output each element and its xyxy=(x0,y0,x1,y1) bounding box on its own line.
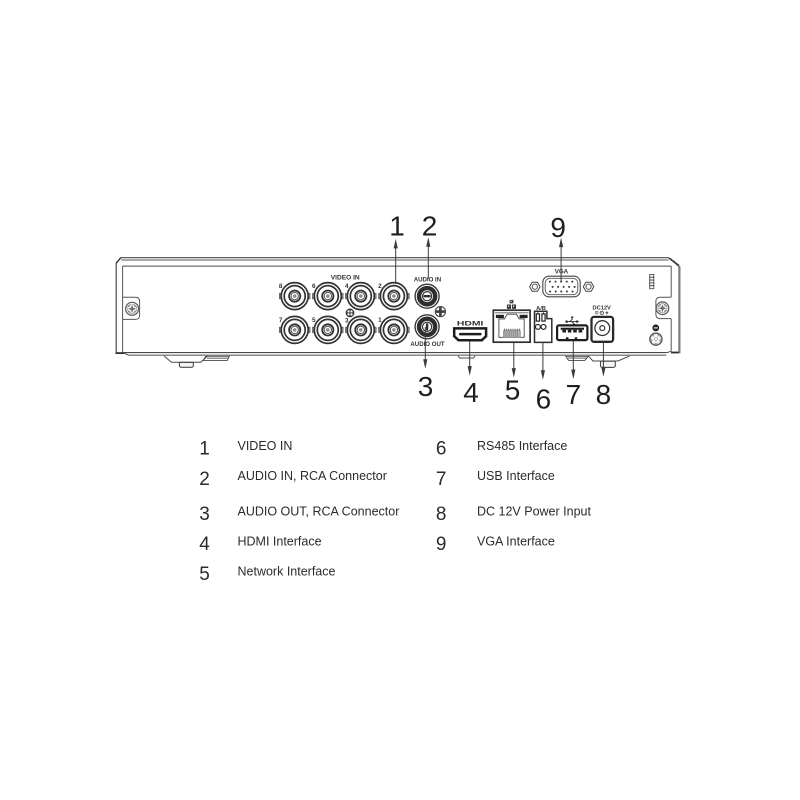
svg-text:3: 3 xyxy=(418,371,434,402)
svg-text:3: 3 xyxy=(199,504,210,525)
svg-text:AUDIO OUT, RCA Connector: AUDIO OUT, RCA Connector xyxy=(238,504,400,518)
svg-text:2: 2 xyxy=(422,211,438,242)
svg-text:5: 5 xyxy=(199,564,210,585)
svg-text:Network Interface: Network Interface xyxy=(238,564,336,578)
svg-text:HDMI: HDMI xyxy=(457,320,484,327)
svg-text:5: 5 xyxy=(505,375,521,406)
svg-text:1: 1 xyxy=(199,439,210,460)
svg-text:6: 6 xyxy=(536,384,552,415)
svg-text:DC 12V Power Input: DC 12V Power Input xyxy=(477,504,591,518)
svg-text:8: 8 xyxy=(596,379,612,410)
svg-text:7: 7 xyxy=(436,469,447,490)
svg-text:HDMI Interface: HDMI Interface xyxy=(238,535,322,549)
svg-text:7: 7 xyxy=(566,379,582,410)
svg-text:3: 3 xyxy=(345,318,349,325)
svg-text:RS485 Interface: RS485 Interface xyxy=(477,439,567,453)
svg-text:9: 9 xyxy=(550,212,566,243)
svg-text:5: 5 xyxy=(312,317,316,324)
svg-text:VGA Interface: VGA Interface xyxy=(477,535,555,549)
svg-text:USB Interface: USB Interface xyxy=(477,469,555,483)
svg-text:AUDIO OUT: AUDIO OUT xyxy=(410,341,444,348)
svg-text:2: 2 xyxy=(199,469,210,490)
svg-text:8: 8 xyxy=(279,283,283,290)
svg-text:9: 9 xyxy=(436,534,447,555)
svg-text:AUDIO IN: AUDIO IN xyxy=(414,276,441,283)
svg-text:VGA: VGA xyxy=(555,269,569,276)
svg-text:VIDEO IN: VIDEO IN xyxy=(331,274,360,281)
svg-text:4: 4 xyxy=(463,377,479,408)
svg-text:1: 1 xyxy=(389,211,405,242)
svg-text:VIDEO IN: VIDEO IN xyxy=(238,439,293,453)
svg-text:6: 6 xyxy=(312,283,316,290)
svg-text:1: 1 xyxy=(378,317,382,324)
svg-text:4: 4 xyxy=(345,283,349,290)
svg-text:7: 7 xyxy=(279,317,283,324)
svg-text:8: 8 xyxy=(436,504,447,525)
svg-text:4: 4 xyxy=(199,534,210,555)
svg-text:2: 2 xyxy=(378,283,382,290)
svg-text:AUDIO IN, RCA Connector: AUDIO IN, RCA Connector xyxy=(238,469,387,483)
svg-text:6: 6 xyxy=(436,439,447,460)
